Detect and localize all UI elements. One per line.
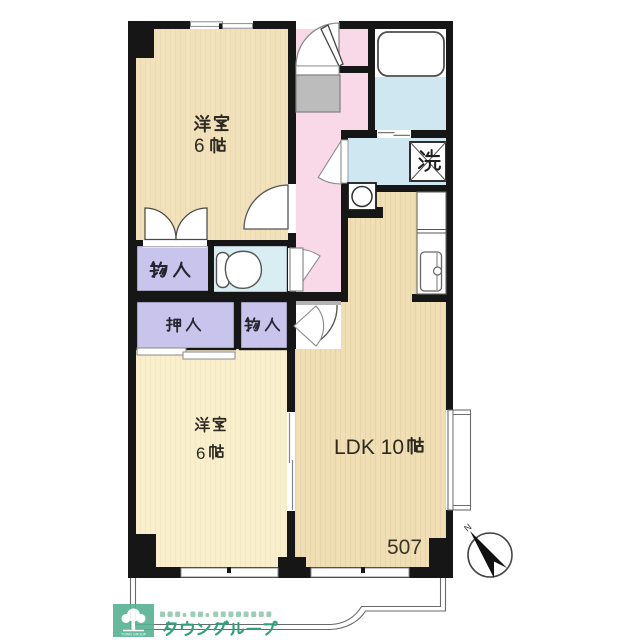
svg-text:507: 507 [387,536,422,559]
svg-text:TOWN GROUP: TOWN GROUP [121,633,147,637]
svg-text:LDK 10: LDK 10 [334,436,404,459]
svg-text:6: 6 [196,444,205,463]
svg-text:6: 6 [194,136,205,157]
